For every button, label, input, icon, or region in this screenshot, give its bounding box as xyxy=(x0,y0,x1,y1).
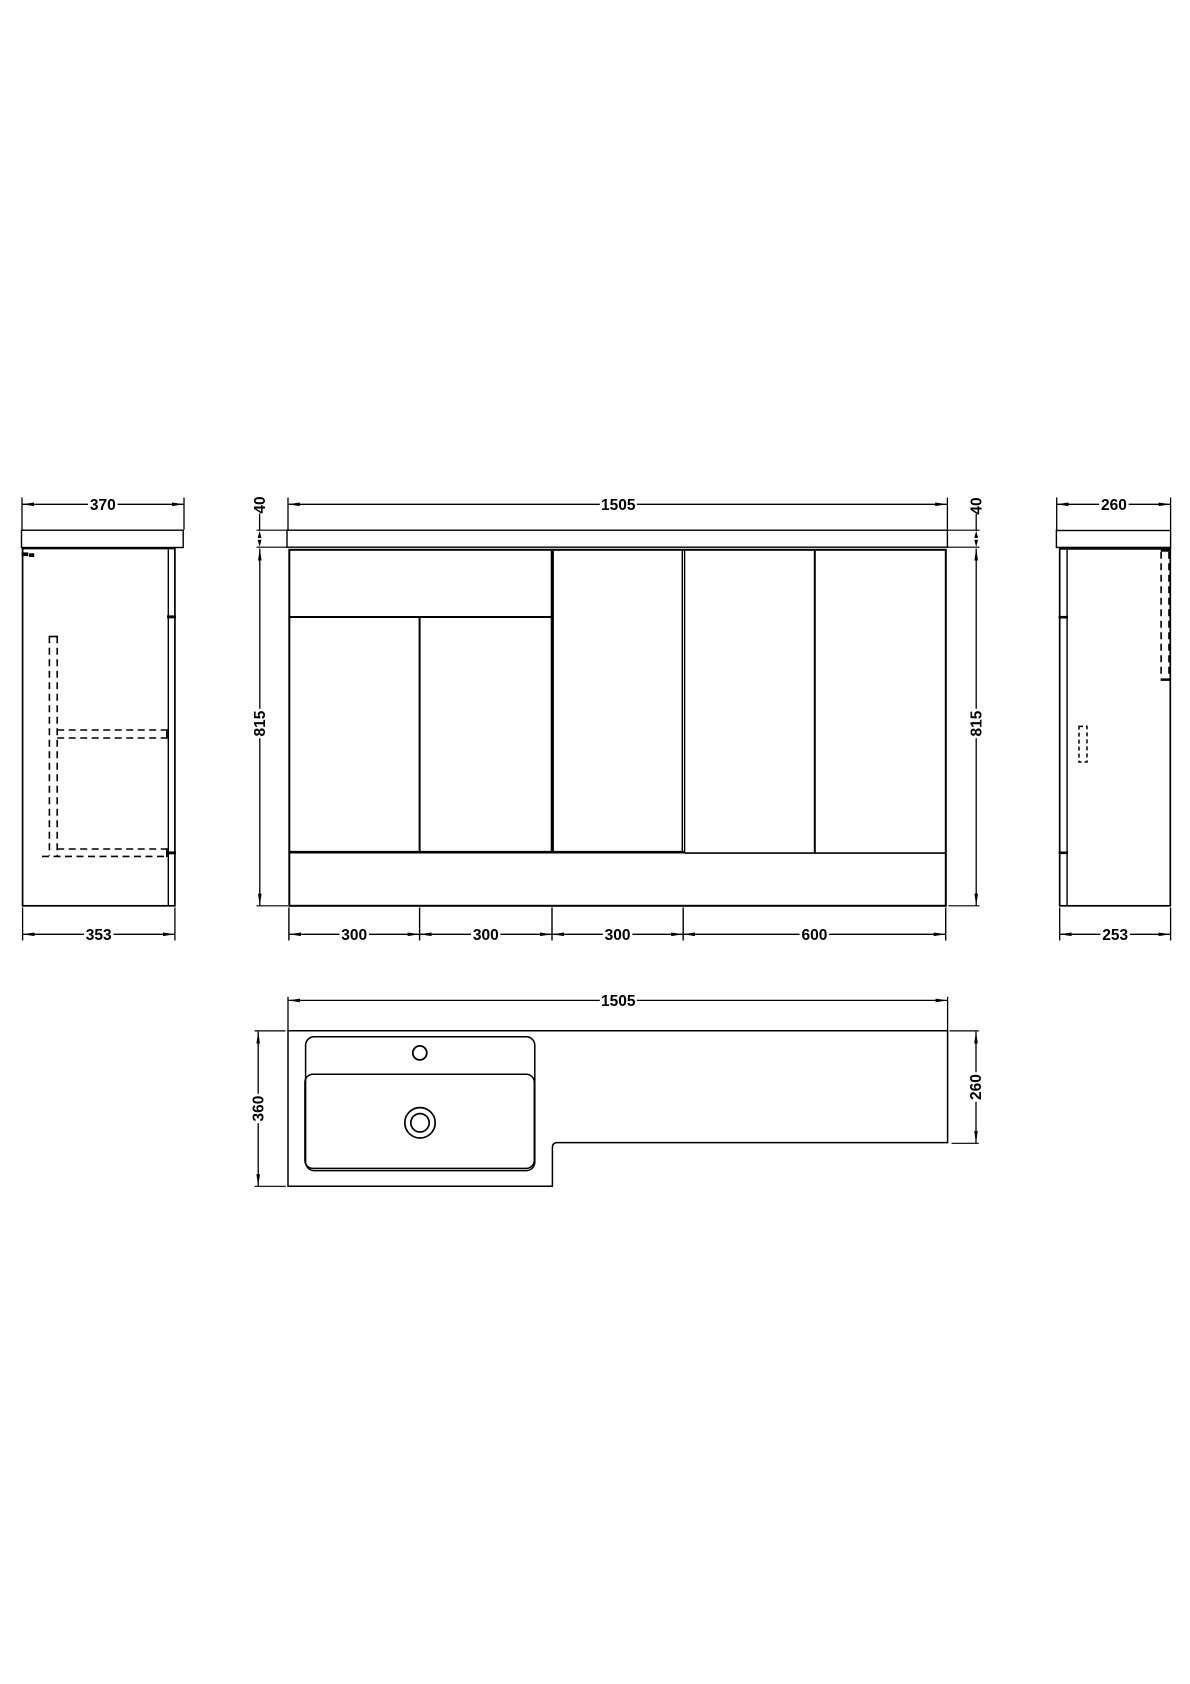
svg-text:300: 300 xyxy=(605,927,631,944)
svg-text:815: 815 xyxy=(968,710,985,736)
svg-text:260: 260 xyxy=(1101,497,1127,514)
svg-text:370: 370 xyxy=(90,497,116,514)
svg-text:353: 353 xyxy=(86,927,112,944)
svg-text:600: 600 xyxy=(801,927,827,944)
svg-text:40: 40 xyxy=(252,496,269,513)
svg-text:1505: 1505 xyxy=(601,993,636,1010)
svg-text:815: 815 xyxy=(252,710,269,736)
svg-text:300: 300 xyxy=(341,927,367,944)
svg-text:253: 253 xyxy=(1102,927,1128,944)
svg-text:260: 260 xyxy=(968,1074,985,1100)
svg-text:1505: 1505 xyxy=(601,497,636,514)
svg-text:40: 40 xyxy=(968,497,985,514)
svg-text:360: 360 xyxy=(250,1096,267,1122)
svg-text:300: 300 xyxy=(473,927,499,944)
